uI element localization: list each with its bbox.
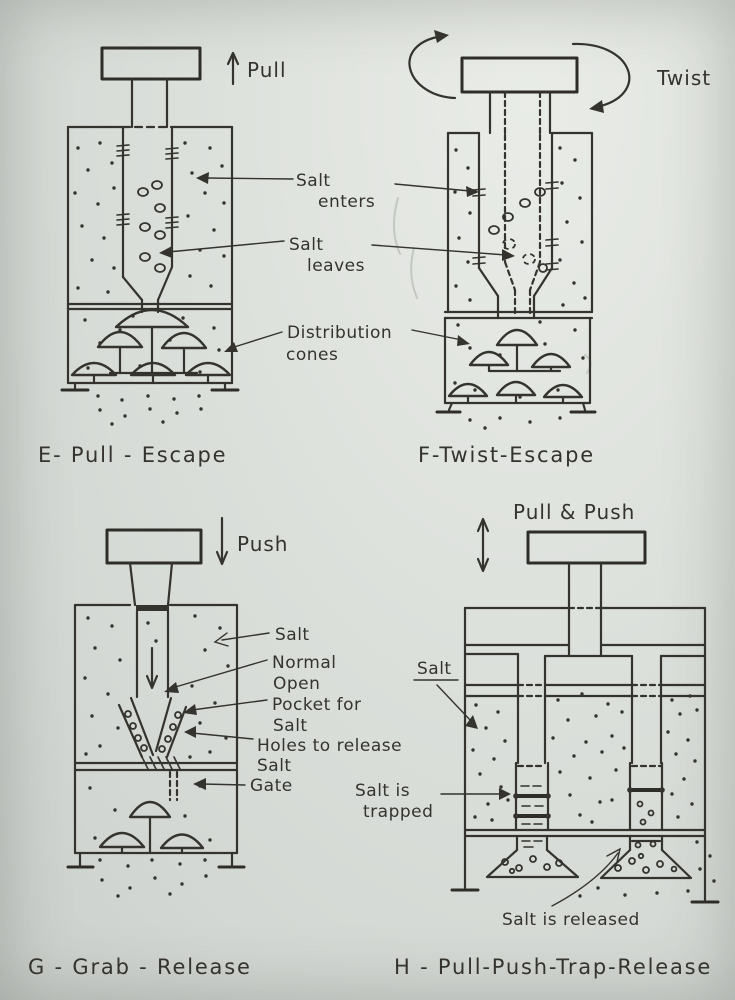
f-salt-grains	[489, 188, 547, 272]
svg-text:trapped: trapped	[363, 802, 433, 822]
g-salt-dots	[83, 614, 229, 841]
svg-text:Salt: Salt	[417, 659, 452, 679]
f-stem	[490, 92, 550, 135]
h-label-salt: Salt	[414, 659, 478, 729]
e-tube-hole-ticks	[117, 145, 178, 228]
f-knob	[462, 58, 577, 92]
g-knob	[107, 530, 201, 563]
h-container	[452, 608, 718, 902]
twist-arrow-left-icon	[409, 30, 455, 98]
h-piston-seals	[465, 685, 705, 696]
h-released-arrow-icon	[607, 849, 620, 862]
g-action-label: Push	[237, 532, 288, 556]
salt-leaves-label-1: Salt	[289, 235, 324, 255]
svg-text:Salt is released: Salt is released	[502, 910, 640, 930]
e-falling-salt-dots	[96, 394, 202, 425]
e-distribution-cones	[72, 310, 230, 383]
annotation-salt-enters: Salt enters	[196, 171, 479, 212]
h-knob	[528, 532, 645, 563]
f-distribution-cones	[449, 330, 582, 403]
h-inner-columns	[465, 654, 705, 766]
svg-text:Salt: Salt	[257, 756, 292, 776]
g-label-pocket: Pocket for Salt	[183, 695, 362, 736]
e-salt-grains	[138, 181, 165, 272]
diagram-e-pull-escape: Pull	[38, 48, 287, 467]
cones-label-1: Distribution	[287, 323, 392, 343]
salt-leaves-arrow-left-icon	[159, 246, 172, 258]
caption-g: G - Grab - Release	[28, 955, 252, 979]
h-trap-left	[513, 763, 551, 830]
svg-text:Pocket for: Pocket for	[272, 695, 362, 715]
h-funnel-left	[487, 836, 578, 877]
svg-text:Open: Open	[273, 674, 320, 694]
annotation-distribution-cones: Distribution cones	[224, 323, 470, 365]
h-trapped-arrow-icon	[499, 788, 511, 800]
g-gate-dashed	[170, 772, 177, 800]
caption-h: H - Pull-Push-Trap-Release	[394, 955, 712, 979]
e-knob	[102, 48, 200, 79]
salt-shaker-mechanisms-sketch: Pull	[0, 0, 735, 1000]
pull-push-arrow-icon	[478, 519, 488, 571]
e-action-label: Pull	[247, 58, 287, 82]
g-falling-salt-dots	[98, 858, 207, 897]
svg-text:Salt: Salt	[275, 625, 310, 645]
h-label-trapped: Salt is trapped	[355, 781, 511, 822]
f-inner-tube	[473, 133, 558, 318]
pull-arrow-icon	[228, 53, 238, 84]
e-stem	[132, 79, 167, 127]
g-label-normal-open: Normal Open	[164, 653, 337, 694]
svg-text:Normal: Normal	[272, 653, 337, 673]
h-action-label: Pull & Push	[513, 500, 635, 524]
f-salt-dots	[453, 146, 586, 429]
g-gate-arrow-icon	[193, 778, 206, 790]
h-salt-dots	[471, 692, 698, 823]
diagram-f-twist-escape: Twist	[409, 30, 711, 467]
e-inner-tube	[117, 127, 178, 312]
g-normal-open-arrow-icon	[164, 682, 179, 693]
salt-enters-arrow-left-icon	[196, 172, 209, 184]
g-salt-pocket	[119, 698, 186, 757]
g-label-gate: Gate	[193, 776, 293, 796]
salt-leaves-label-2: leaves	[307, 256, 365, 276]
push-arrow-icon	[217, 518, 227, 564]
h-trap-right	[627, 763, 665, 830]
g-tube-flow-arrow-icon	[147, 648, 157, 688]
diagram-h-pull-push-trap-release: Pull & Push	[355, 500, 718, 979]
f-tube-hole-ticks	[473, 182, 558, 270]
salt-enters-label-2: enters	[318, 192, 375, 212]
f-action-label: Twist	[656, 66, 711, 90]
svg-text:Gate: Gate	[250, 776, 293, 796]
svg-text:Salt is: Salt is	[355, 781, 410, 801]
g-stem	[130, 563, 172, 605]
diagram-g-grab-release: Push	[28, 518, 402, 979]
cones-arrow-right-icon	[457, 335, 470, 346]
g-holes-arrow-icon	[184, 726, 196, 738]
salt-enters-label-1: Salt	[296, 171, 331, 191]
caption-e: E- Pull - Escape	[38, 443, 227, 467]
svg-text:Holes to release: Holes to release	[257, 736, 402, 756]
annotation-salt-leaves: Salt leaves	[159, 235, 515, 276]
twist-arrow-right-icon	[573, 44, 629, 113]
h-released-salt-dots	[578, 840, 715, 897]
g-label-salt: Salt	[215, 625, 310, 646]
svg-text:Salt: Salt	[273, 716, 308, 736]
sketch-page: Pull	[0, 0, 735, 1000]
caption-f: F-Twist-Escape	[418, 443, 595, 467]
cones-label-2: cones	[286, 345, 338, 365]
h-stem	[569, 563, 601, 656]
